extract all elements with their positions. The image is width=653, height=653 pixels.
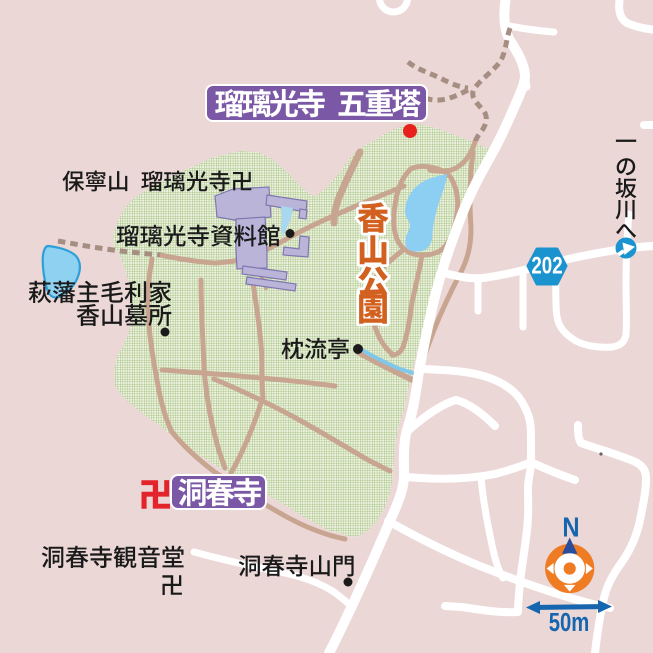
svg-text:202: 202	[531, 252, 562, 279]
svg-text:N: N	[562, 511, 579, 543]
svg-text:50m: 50m	[549, 608, 590, 637]
